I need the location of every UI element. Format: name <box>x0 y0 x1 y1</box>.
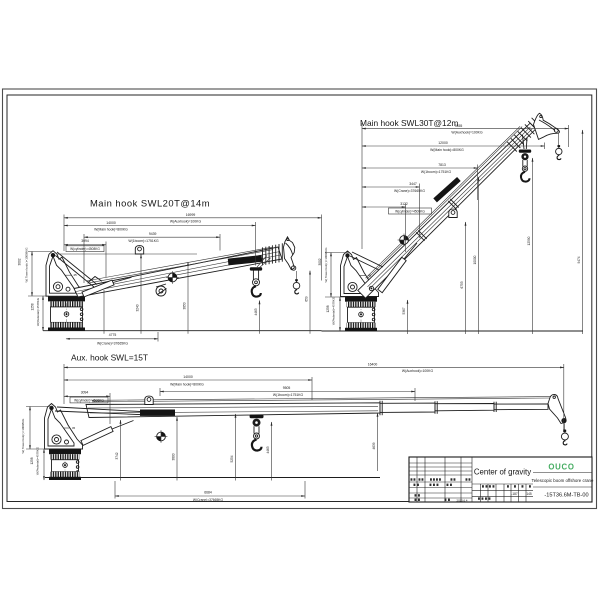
svg-text:W(Main hook)=800KG: W(Main hook)=800KG <box>170 383 204 387</box>
svg-text:W(Crane)=37665KG: W(Crane)=37665KG <box>97 342 128 346</box>
svg-text:14000: 14000 <box>183 375 193 379</box>
svg-text:4463: 4463 <box>254 308 258 315</box>
svg-text:3742: 3742 <box>115 452 119 459</box>
svg-text:5367: 5367 <box>402 307 406 314</box>
svg-text:3094: 3094 <box>81 390 89 394</box>
svg-text:3002: 3002 <box>318 258 322 265</box>
svg-text:3800: 3800 <box>171 453 175 460</box>
svg-text:45: 45 <box>73 273 77 277</box>
svg-text:9505: 9505 <box>283 386 291 390</box>
svg-text:3447: 3447 <box>409 182 417 186</box>
svg-text:5254: 5254 <box>230 455 234 462</box>
svg-text:W(cylinder)=4508KG: W(cylinder)=4508KG <box>395 209 425 213</box>
svg-text:W(cylinder)=4508KG: W(cylinder)=4508KG <box>74 398 104 402</box>
svg-text:W(1boom)=1751KG: W(1boom)=1751KG <box>421 170 452 174</box>
svg-text:3122: 3122 <box>400 202 408 206</box>
svg-text:145: 145 <box>526 492 532 496</box>
svg-text:W(1boom)=1751KG: W(1boom)=1751KG <box>273 393 304 397</box>
svg-text:W(Crane)=37665KG: W(Crane)=37665KG <box>193 498 224 502</box>
svg-text:7813: 7813 <box>438 163 446 167</box>
svg-text:1258: 1258 <box>30 457 34 464</box>
svg-text:3094: 3094 <box>81 239 89 243</box>
svg-text:W( Tower body )=10008KG: W( Tower body )=10008KG <box>25 247 29 283</box>
svg-text:Telescopic boom offshore crane: Telescopic boom offshore crane <box>532 478 594 483</box>
svg-text:9474: 9474 <box>577 256 581 263</box>
svg-text:W(Crane)=37665KG: W(Crane)=37665KG <box>394 189 425 193</box>
svg-text:12000: 12000 <box>438 141 448 145</box>
svg-text:-15T36.6M-TB-00: -15T36.6M-TB-00 <box>544 493 588 499</box>
svg-text:OUCO: OUCO <box>548 463 574 472</box>
svg-text:Main hook SWL30T@12m: Main hook SWL30T@12m <box>360 118 458 128</box>
svg-text:14000: 14000 <box>106 221 116 225</box>
svg-text:4775: 4775 <box>109 333 117 337</box>
svg-text:Main hook SWL20T@14m: Main hook SWL20T@14m <box>90 198 210 209</box>
svg-text:3850: 3850 <box>182 302 186 309</box>
svg-text:W(Auxhook)=100KG: W(Auxhook)=100KG <box>402 369 434 373</box>
svg-text:4639: 4639 <box>372 442 376 449</box>
svg-text:Aux. hook SWL=15T: Aux. hook SWL=15T <box>71 353 148 363</box>
svg-text:W( Tower body )=10008KG: W( Tower body )=10008KG <box>21 418 25 454</box>
svg-text:6684: 6684 <box>204 491 212 495</box>
svg-text:W(Pedestal)=4578KG: W(Pedestal)=4578KG <box>36 446 40 475</box>
svg-text:W(Auxhook)=100KG: W(Auxhook)=100KG <box>451 130 483 134</box>
svg-text:10000: 10000 <box>473 255 477 264</box>
svg-text:W(1boom)=1751KG: W(1boom)=1751KG <box>128 239 159 243</box>
svg-text:9455: 9455 <box>455 124 463 128</box>
svg-text:6753: 6753 <box>460 281 464 288</box>
svg-text:9439: 9439 <box>149 232 157 236</box>
svg-text:W( Tower body )=10008KG: W( Tower body )=10008KG <box>324 247 328 283</box>
svg-text:W(Auxhook)=100KG: W(Auxhook)=100KG <box>170 219 202 223</box>
svg-text:4463: 4463 <box>266 446 270 453</box>
svg-text:Center of gravity: Center of gravity <box>474 468 531 477</box>
svg-text:3002: 3002 <box>18 258 22 265</box>
svg-text:1258: 1258 <box>326 305 330 312</box>
svg-text:2025.6.4: 2025.6.4 <box>457 498 468 502</box>
svg-text:16400: 16400 <box>368 363 378 367</box>
svg-text:W(Pedestal)=4578KG: W(Pedestal)=4578KG <box>332 296 336 325</box>
svg-text:45: 45 <box>72 426 76 430</box>
svg-text:W(Main hook)=800KG: W(Main hook)=800KG <box>430 148 464 152</box>
svg-text:1258: 1258 <box>31 303 35 310</box>
svg-text:W(Pedestal)=4578KG: W(Pedestal)=4578KG <box>36 297 40 326</box>
svg-text:-187: -187 <box>511 492 518 496</box>
svg-text:16999: 16999 <box>186 213 196 217</box>
svg-text:3240: 3240 <box>135 304 139 311</box>
svg-text:W(Main hook)=800KG: W(Main hook)=800KG <box>94 228 128 232</box>
svg-text:659: 659 <box>304 296 308 302</box>
svg-text:W(cylinder)=4508KG: W(cylinder)=4508KG <box>70 247 100 251</box>
svg-text:12590: 12590 <box>527 236 531 245</box>
